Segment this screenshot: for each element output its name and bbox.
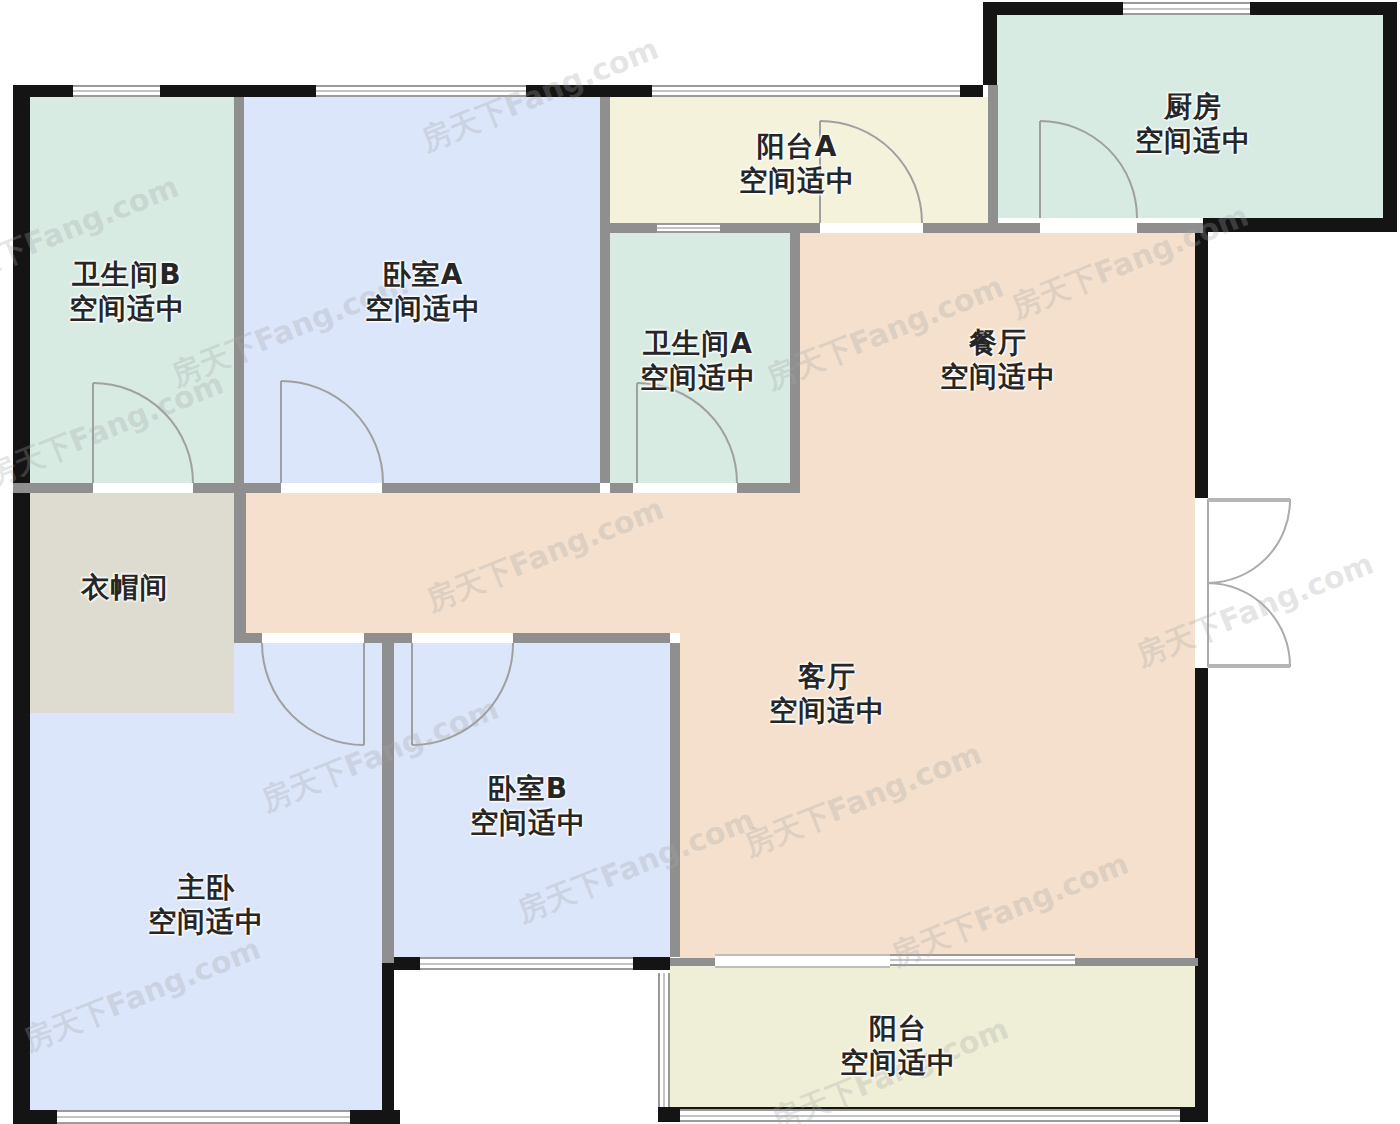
entry-door-arc-top: [1208, 500, 1290, 583]
entry-door-arc-bottom: [1208, 583, 1290, 666]
room-name: 卧室A: [365, 258, 481, 292]
room-status: 空间适中: [840, 1046, 956, 1080]
room-label-master: 主卧 空间适中: [148, 871, 264, 939]
room-label-kitchen: 厨房 空间适中: [1135, 90, 1251, 158]
doors-overlay: [0, 0, 1400, 1124]
room-name: 主卧: [148, 871, 264, 905]
room-status: 空间适中: [470, 806, 586, 840]
room-name: 厨房: [1135, 90, 1251, 124]
room-label-bathroom-a: 卫生间A 空间适中: [640, 327, 756, 395]
room-label-dining: 餐厅 空间适中: [940, 326, 1056, 394]
room-label-bedroom-a: 卧室A 空间适中: [365, 258, 481, 326]
room-label-balcony: 阳台 空间适中: [840, 1012, 956, 1080]
door-arc-bedroom-b: [412, 643, 513, 745]
room-label-bathroom-b: 卫生间B 空间适中: [69, 258, 185, 326]
floor-plan: 房天下Fang.com 房天下Fang.com 房天下Fang.com 房天下F…: [0, 0, 1400, 1124]
room-status: 空间适中: [365, 292, 481, 326]
room-status: 空间适中: [940, 360, 1056, 394]
room-label-balcony-a: 阳台A 空间适中: [739, 130, 855, 198]
room-status: 空间适中: [69, 292, 185, 326]
room-label-living: 客厅 空间适中: [769, 660, 885, 728]
room-name: 卧室B: [470, 772, 586, 806]
room-label-bedroom-b: 卧室B 空间适中: [470, 772, 586, 840]
room-name: 衣帽间: [82, 571, 169, 605]
room-name: 客厅: [769, 660, 885, 694]
room-name: 卫生间B: [69, 258, 185, 292]
room-status: 空间适中: [148, 905, 264, 939]
room-name: 阳台: [840, 1012, 956, 1046]
door-arc-master: [262, 643, 364, 745]
door-arc-bathroom-b: [93, 383, 193, 483]
room-label-cloakroom: 衣帽间: [82, 571, 169, 605]
room-name: 卫生间A: [640, 327, 756, 361]
door-arc-kitchen: [1040, 121, 1137, 218]
room-status: 空间适中: [1135, 124, 1251, 158]
room-name: 阳台A: [739, 130, 855, 164]
room-name: 餐厅: [940, 326, 1056, 360]
room-status: 空间适中: [640, 361, 756, 395]
room-status: 空间适中: [739, 164, 855, 198]
door-arc-bedroom-a: [281, 381, 383, 483]
room-status: 空间适中: [769, 694, 885, 728]
door-arc-bathroom-a: [637, 383, 737, 483]
